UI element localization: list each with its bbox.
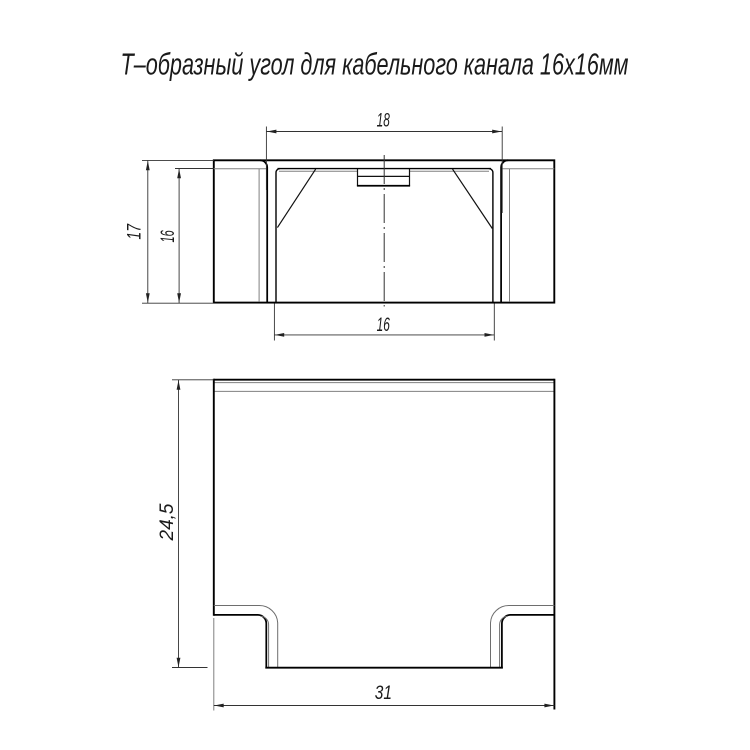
svg-text:31: 31 — [375, 682, 392, 704]
svg-text:Т–образный угол для кабельного: Т–образный угол для кабельного канала 16… — [121, 48, 629, 82]
svg-text:18: 18 — [377, 110, 390, 132]
svg-text:16: 16 — [377, 314, 390, 336]
svg-text:17: 17 — [124, 223, 146, 239]
svg-text:16: 16 — [157, 230, 179, 242]
svg-text:24,5: 24,5 — [156, 503, 178, 541]
